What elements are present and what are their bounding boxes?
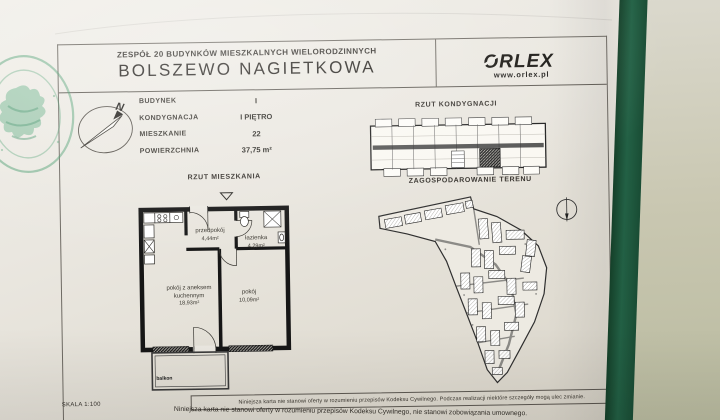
detail-value: 22 [211, 128, 301, 138]
room-label-bedroom: pokój 10,09m² [224, 289, 274, 304]
photo-of-floorplan-card: ZESPÓŁ 20 BUDYNKÓW MIESZKALNYCH WIELOROD… [0, 0, 720, 420]
detail-label: BUDYNEK [139, 98, 177, 106]
balcony-label: balkon [156, 376, 172, 382]
detail-value: 37,75 m² [212, 145, 302, 155]
developer-logo: ORLEX www.orlex.pl [436, 37, 607, 87]
unit-details: BUDYNEK I KONDYGNACJA I PIĘTRO MIESZKANI… [139, 93, 360, 162]
green-round-stamp [0, 46, 98, 188]
entrance-marker-icon [219, 192, 233, 202]
page-title: BOLSZEWO NAGIETKOWA [58, 56, 435, 82]
detail-row: POWIERZCHNIA 37,75 m² [140, 142, 360, 162]
detail-label: POWIERZCHNIA [140, 147, 200, 155]
property-card: ZESPÓŁ 20 BUDYNKÓW MIESZKALNYCH WIELOROD… [57, 36, 613, 420]
room-label-bathroom: łazienka 4,29m² [231, 235, 281, 250]
orlex-logo-icon: ORLEX [469, 47, 573, 73]
apartment-plan: przedpokój 4,44m² łazienka 4,29m² pokój … [135, 202, 298, 402]
apartment-plan-label: RZUT MIESZKANIA [154, 173, 294, 182]
detail-label: MIESZKANIE [139, 130, 186, 138]
card-header: ZESPÓŁ 20 BUDYNKÓW MIESZKALNYCH WIELOROD… [58, 37, 607, 94]
logo-website: www.orlex.pl [494, 70, 550, 80]
detail-value: I [211, 95, 301, 105]
detail-value: I PIĘTRO [211, 112, 301, 122]
site-plan-drawing [374, 185, 592, 393]
site-north-arrow-icon [557, 197, 577, 221]
stairwell [452, 151, 465, 168]
balcony [152, 352, 229, 390]
disclaimer-bottom: Niniejsza karta nie stanowi oferty w roz… [174, 406, 654, 419]
floor-plan-label: RZUT KONDYGNACJI [356, 100, 556, 110]
room-label-living-kitchen: pokój z aneksem kuchennym 18,93m² [160, 285, 218, 308]
window [229, 345, 273, 352]
storey-plan-drawing [364, 111, 552, 182]
highlighted-unit [480, 148, 501, 167]
scale-note: SKALA 1:100 [62, 402, 101, 409]
title-block: ZESPÓŁ 20 BUDYNKÓW MIESZKALNYCH WIELOROD… [58, 39, 437, 92]
detail-label: KONDYGNACJA [139, 114, 198, 122]
